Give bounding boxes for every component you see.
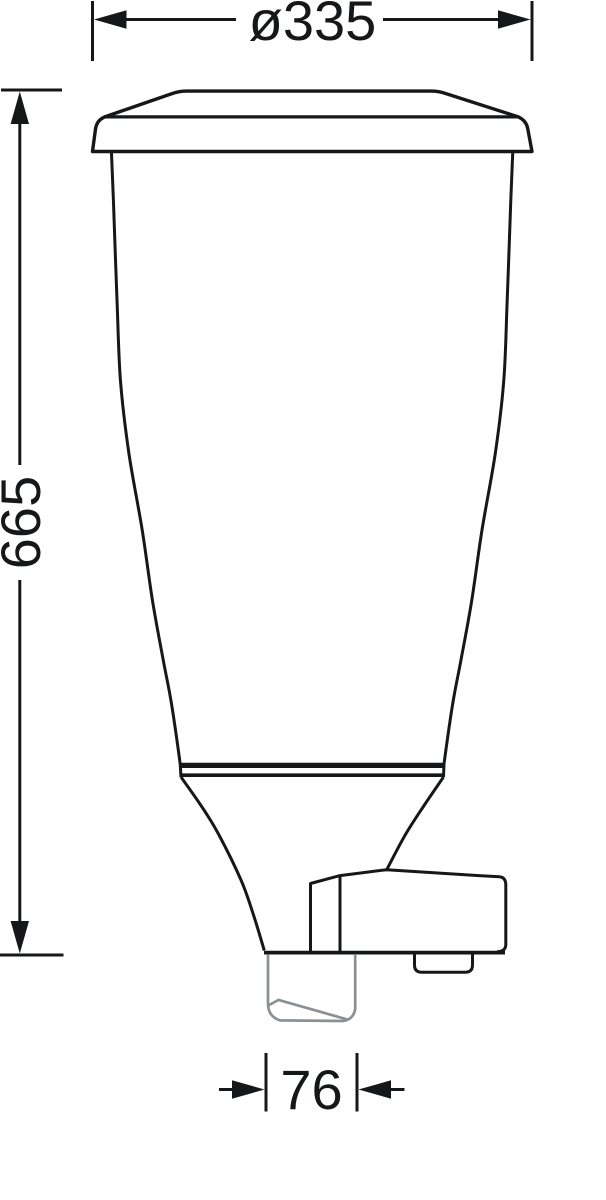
svg-text:76: 76 — [280, 1058, 342, 1121]
svg-text:ø335: ø335 — [249, 0, 377, 52]
svg-text:665: 665 — [0, 476, 52, 569]
